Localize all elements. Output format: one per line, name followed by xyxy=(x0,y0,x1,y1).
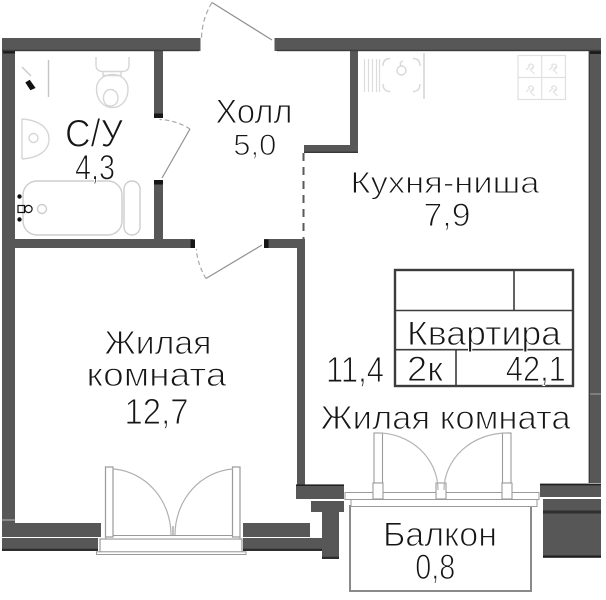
svg-text:42,1: 42,1 xyxy=(506,350,566,389)
svg-text:4,3: 4,3 xyxy=(75,149,115,188)
svg-text:12,7: 12,7 xyxy=(125,391,189,432)
svg-text:0,8: 0,8 xyxy=(415,548,455,587)
svg-text:Квартира: Квартира xyxy=(407,315,562,353)
svg-text:комната: комната xyxy=(87,356,228,393)
svg-text:2к: 2к xyxy=(407,350,444,389)
svg-text:11,4: 11,4 xyxy=(326,349,384,390)
svg-text:Жилая комната: Жилая комната xyxy=(321,399,572,436)
svg-text:Кухня-ниша: Кухня-ниша xyxy=(351,165,541,200)
svg-text:5,0: 5,0 xyxy=(233,129,276,162)
svg-text:Холл: Холл xyxy=(216,93,293,131)
svg-text:7,9: 7,9 xyxy=(424,197,471,233)
